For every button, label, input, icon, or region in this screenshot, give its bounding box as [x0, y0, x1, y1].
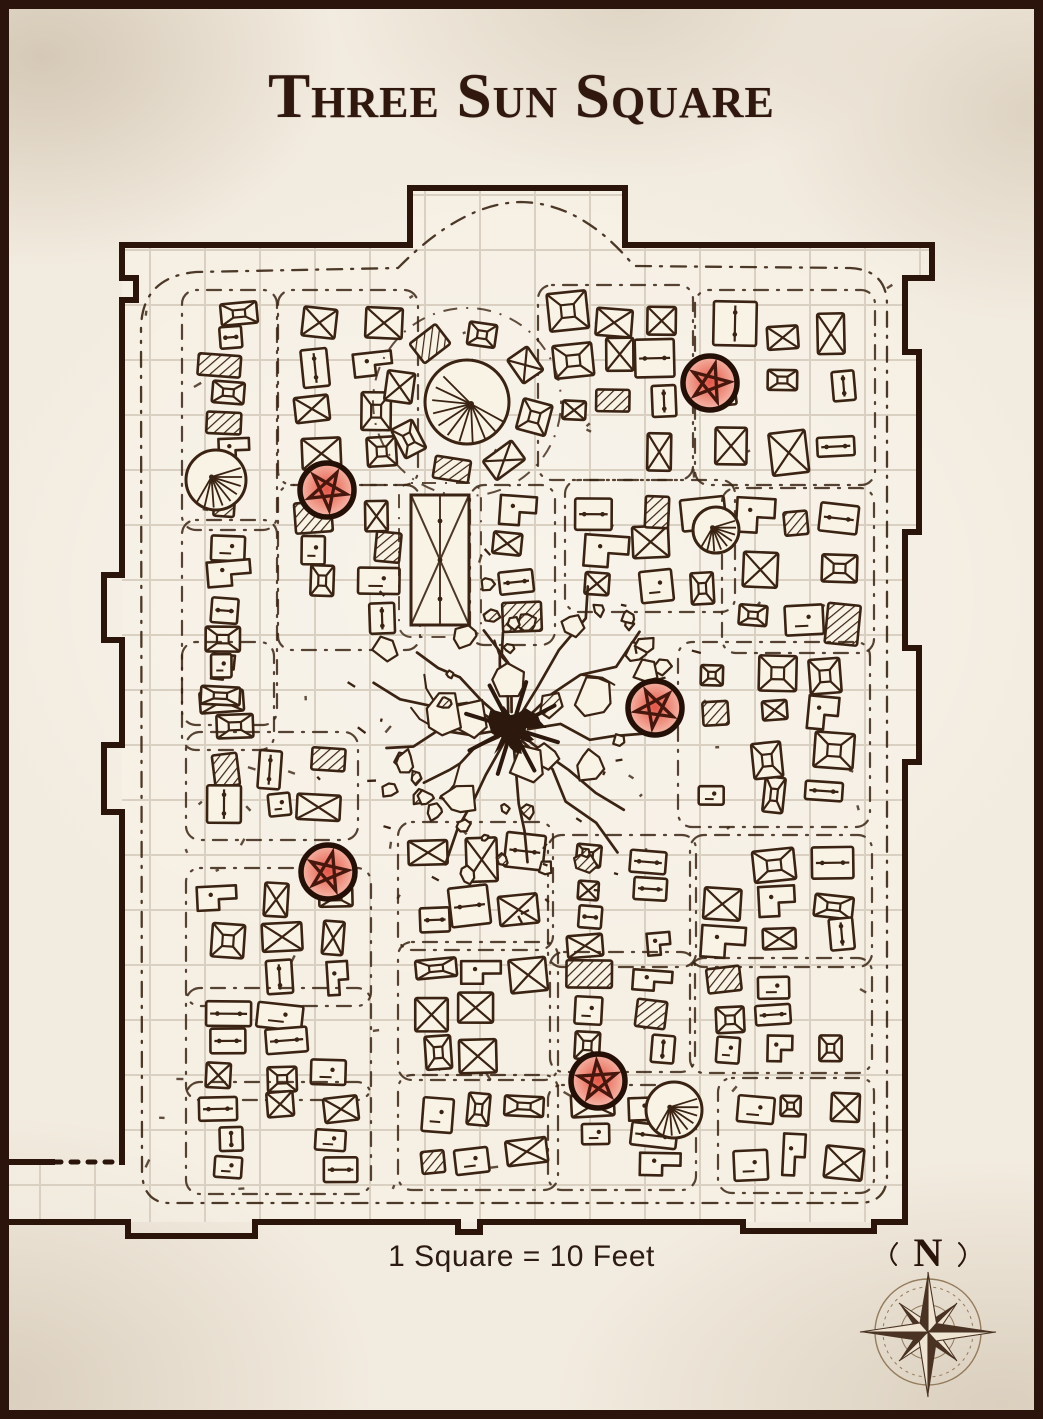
market-stall — [562, 400, 586, 420]
market-hall — [399, 483, 481, 637]
market-stall — [216, 714, 253, 739]
market-stall — [690, 572, 714, 605]
market-stall — [454, 1147, 490, 1175]
market-stall — [206, 1062, 232, 1088]
ground-speckle — [176, 1078, 183, 1081]
market-stall — [813, 731, 855, 769]
market-stall — [211, 535, 245, 561]
market-stall — [738, 604, 767, 626]
market-stall — [301, 536, 325, 565]
market-stall — [758, 977, 790, 999]
market-stall — [633, 877, 667, 901]
market-stall — [831, 370, 855, 401]
market-stall — [268, 792, 292, 816]
market-stall — [825, 603, 861, 646]
market-stall — [415, 998, 448, 1031]
market-stall — [818, 502, 859, 534]
market-stall — [716, 1006, 745, 1033]
market-stall — [212, 753, 240, 788]
market-stall — [752, 848, 796, 883]
market-stall — [647, 307, 676, 335]
market-stall — [635, 999, 668, 1030]
scale-label: 1 Square = 10 Feet — [0, 1240, 1043, 1274]
market-stall — [322, 920, 345, 955]
ground-speckle — [715, 746, 719, 749]
market-stall — [324, 1157, 358, 1182]
market-stall — [300, 348, 330, 388]
compass-point-west-dark — [860, 1332, 928, 1341]
market-stall — [408, 840, 448, 865]
market-stall — [197, 353, 241, 378]
market-stall — [762, 776, 786, 813]
market-stall — [365, 307, 403, 339]
market-stall — [266, 1091, 294, 1118]
market-stall — [768, 430, 809, 476]
market-stall — [651, 1035, 676, 1064]
market-stall — [805, 781, 843, 802]
market-stall — [768, 370, 798, 390]
market-stall — [374, 531, 401, 562]
market-stall — [546, 290, 589, 332]
market-stall — [214, 1156, 242, 1179]
market-stall — [632, 525, 669, 558]
market-stall — [200, 686, 240, 706]
market-stall — [715, 427, 747, 464]
market-stall — [315, 1129, 346, 1151]
market-stall — [578, 905, 602, 929]
market-stall — [301, 306, 337, 338]
market-stall — [822, 554, 858, 582]
compass-point-south-dark — [928, 1332, 937, 1397]
market-stall — [516, 398, 553, 436]
market-stall — [206, 411, 241, 434]
market-stall — [817, 313, 845, 354]
round-tent — [693, 507, 739, 553]
market-stall — [384, 370, 415, 404]
market-stall — [808, 658, 841, 695]
market-stall — [207, 785, 241, 823]
market-stall — [296, 794, 341, 822]
market-stall — [829, 917, 855, 950]
market-stall — [210, 1028, 245, 1053]
ground-speckle — [238, 1187, 244, 1190]
market-stall — [467, 321, 498, 348]
round-tent — [186, 450, 246, 510]
market-stall — [421, 1097, 454, 1133]
market-stall — [459, 1039, 497, 1073]
market-stall — [267, 1067, 297, 1092]
market-stall — [257, 750, 282, 789]
market-stall — [784, 604, 823, 635]
compass-point-east-dark — [928, 1323, 996, 1332]
market-stall — [433, 456, 472, 483]
town-map-canvas: N — [0, 0, 1043, 1419]
market-stall — [498, 893, 540, 926]
market-stall — [824, 1145, 865, 1181]
market-stall — [358, 567, 400, 594]
market-stall — [505, 1137, 548, 1166]
pentagram-marker[interactable] — [571, 1054, 625, 1108]
market-stall — [713, 301, 757, 346]
market-stall — [645, 496, 670, 528]
market-stall — [492, 531, 522, 555]
market-stall — [783, 510, 808, 535]
market-stall — [498, 569, 534, 595]
market-stall — [733, 1150, 768, 1181]
market-stall — [365, 501, 388, 532]
market-stall — [767, 325, 799, 350]
market-stall — [701, 665, 724, 686]
market-stall — [369, 603, 395, 634]
market-stall — [596, 389, 630, 411]
ground-speckle — [159, 1116, 165, 1119]
market-stall — [266, 959, 294, 994]
market-stall — [311, 747, 345, 771]
market-stall — [629, 850, 666, 875]
compass-point-west — [860, 1323, 928, 1332]
market-stall — [743, 552, 779, 588]
market-stall — [652, 385, 677, 417]
market-stall — [702, 701, 729, 726]
market-stall — [220, 301, 258, 326]
round-tent — [646, 1082, 702, 1138]
market-stall — [199, 1097, 237, 1121]
market-stall — [466, 1092, 490, 1125]
market-stall — [415, 957, 457, 979]
market-stall — [566, 960, 612, 988]
market-stall — [567, 934, 604, 959]
ground-speckle — [304, 696, 307, 700]
market-stall — [211, 923, 246, 958]
market-stall — [575, 498, 612, 530]
compass-point-south — [919, 1332, 928, 1397]
market-stall — [448, 884, 491, 927]
pentagram-marker[interactable] — [683, 356, 737, 410]
market-stall — [323, 1095, 359, 1123]
market-stall — [703, 887, 742, 921]
market-stall — [210, 597, 238, 624]
market-stall — [508, 957, 548, 994]
map-title: Three Sun Square — [0, 60, 1043, 133]
market-stall — [552, 342, 594, 379]
market-stall — [574, 996, 602, 1025]
market-stall — [206, 627, 241, 652]
market-stall — [647, 433, 671, 471]
market-stall — [310, 565, 334, 596]
market-stall — [606, 338, 633, 371]
compass-point-east — [928, 1332, 996, 1341]
market-stall — [582, 1124, 610, 1145]
market-stall — [751, 741, 783, 779]
pentagram-marker[interactable] — [300, 463, 354, 517]
compass-point-north — [928, 1272, 937, 1332]
market-stall — [458, 993, 493, 1023]
market-stall — [706, 966, 742, 994]
market-stall — [817, 436, 855, 457]
market-stall — [812, 847, 854, 879]
market-stall — [763, 928, 797, 950]
pentagram-marker[interactable] — [301, 845, 355, 899]
market-stall — [819, 1035, 841, 1061]
market-stall — [211, 654, 232, 677]
market-stall — [780, 1096, 800, 1117]
pentagram-marker[interactable] — [628, 681, 682, 735]
market-stall — [831, 1093, 860, 1122]
market-stall — [263, 882, 288, 917]
market-stall — [262, 922, 303, 952]
market-stall — [699, 786, 724, 804]
market-stall — [762, 700, 788, 721]
market-stall — [420, 907, 450, 932]
parchment-page: Three Sun Square — [0, 0, 1043, 1419]
market-stall — [595, 308, 633, 338]
market-stall — [294, 394, 331, 423]
market-stall — [206, 1001, 251, 1026]
market-stall — [219, 1127, 242, 1151]
market-stall — [716, 1036, 740, 1063]
market-stall — [755, 1004, 791, 1026]
market-stall — [265, 1027, 308, 1055]
market-stall — [759, 655, 797, 691]
market-stall — [813, 894, 854, 920]
market-stall — [424, 1035, 452, 1070]
market-stall — [219, 326, 242, 349]
market-stall — [212, 381, 245, 405]
market-stall — [504, 1095, 544, 1117]
market-stall — [737, 1095, 775, 1124]
market-stall — [639, 569, 674, 604]
market-stall — [421, 1150, 446, 1174]
market-stall — [635, 339, 675, 378]
